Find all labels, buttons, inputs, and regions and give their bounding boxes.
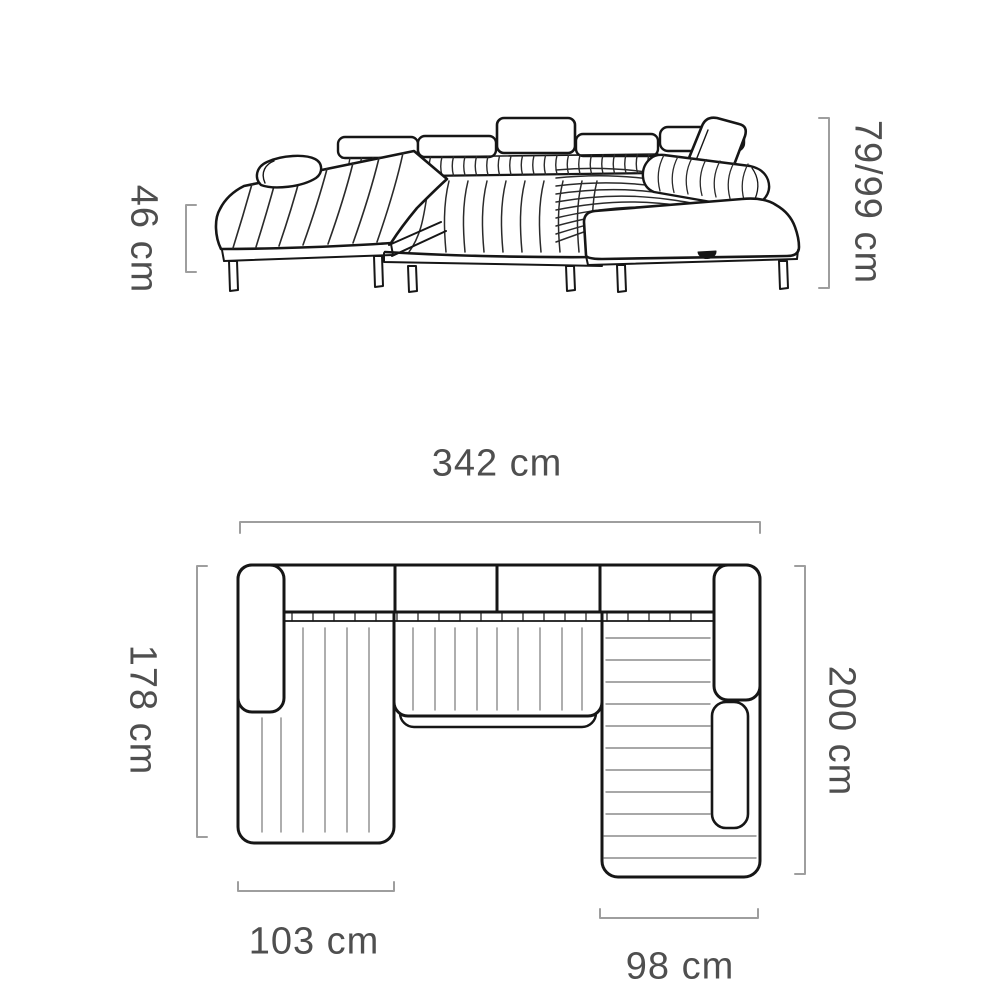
back-height-label: 79/99 cm <box>846 120 889 284</box>
top-plan-view <box>197 522 805 918</box>
stripe-line <box>556 155 557 174</box>
stripe-line <box>539 181 544 252</box>
stripe-line <box>452 157 453 176</box>
plan-right-side-pad <box>712 702 748 828</box>
stripe-line <box>444 181 449 252</box>
plan-left-arm <box>238 565 284 712</box>
plan-right-arm <box>714 565 760 700</box>
stripe-line <box>475 156 476 175</box>
elevation-middle-base <box>384 252 604 292</box>
stripe-line <box>510 156 511 175</box>
back-height-dimension-line <box>819 118 829 288</box>
right-chaise-width-dimension-line <box>600 909 758 918</box>
right-chaise-width-label: 98 cm <box>626 946 734 989</box>
right-depth-dimension-line <box>795 566 805 874</box>
total-width-label: 342 cm <box>432 443 563 486</box>
elevation-raised-headrest <box>497 118 575 153</box>
seat-height-label: 46 cm <box>122 185 165 293</box>
stripe-line <box>463 181 468 252</box>
stripe-line <box>487 156 488 175</box>
stripe-line <box>501 181 506 252</box>
stripe-line <box>602 155 603 174</box>
right-depth-label: 200 cm <box>820 666 863 797</box>
stripe-line <box>464 157 465 176</box>
seat-height-dimension-line <box>186 205 196 272</box>
left-chaise-width-dimension-line <box>238 882 394 891</box>
sofa-dimension-diagram: 46 cm 79/99 cm 342 cm 178 cm 200 cm 103 … <box>0 0 1000 1000</box>
stripe-line <box>567 155 568 174</box>
left-depth-label: 178 cm <box>121 645 164 776</box>
stripe-line <box>520 181 525 252</box>
plan-backrest-band <box>238 565 760 612</box>
front-elevation-view <box>186 118 829 292</box>
stripe-line <box>579 155 580 174</box>
stripe-line <box>521 156 522 175</box>
stripe-line <box>533 156 534 175</box>
stripe-line <box>613 155 614 174</box>
stripe-line <box>544 156 545 175</box>
left-depth-dimension-line <box>197 566 207 837</box>
stripe-line <box>590 155 591 174</box>
left-chaise-width-label: 103 cm <box>249 921 380 964</box>
total-width-dimension-line <box>240 522 760 533</box>
elevation-right-chaise-front <box>584 199 799 292</box>
stripe-line <box>482 181 487 252</box>
stripe-line <box>556 196 698 204</box>
stripe-line <box>498 156 499 175</box>
